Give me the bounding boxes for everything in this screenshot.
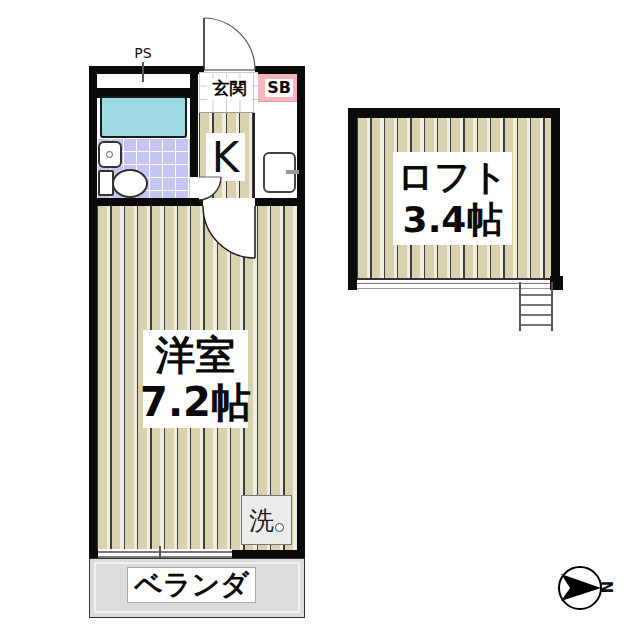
wall-top-right-segment [255, 66, 305, 74]
entrance-text: 玄関 [213, 79, 247, 99]
ladder-rung [521, 324, 551, 326]
compass-north-label: N [598, 579, 614, 595]
bathtub [100, 96, 187, 138]
floor-plan: SB 玄関 K N PS 洋室 7 [0, 0, 640, 640]
wall-bathroom-right [190, 74, 198, 177]
shoe-box-text: SB [267, 79, 291, 98]
ladder-rung [521, 294, 551, 296]
bathroom-sink-drain [106, 151, 113, 158]
veranda-label: ベランダ [127, 567, 256, 603]
pipe-space-label: PS [128, 45, 158, 61]
compass [559, 567, 601, 609]
loft-wall-right [551, 108, 560, 278]
laundry-space: 洗 [241, 495, 292, 545]
western-room-name: 洋室 [156, 332, 236, 379]
veranda-text: ベランダ [134, 569, 249, 602]
kitchen-label: K [206, 133, 245, 181]
wall-mid-left-segment [89, 198, 203, 206]
ladder-rung [521, 304, 551, 306]
loft-wall-left [348, 108, 357, 290]
shoe-box: SB [258, 74, 297, 102]
wall-top-left-segment [89, 66, 204, 74]
loft-edge-line-2 [357, 283, 550, 284]
western-room-size: 7.2帖 [140, 379, 251, 426]
shoe-box-label: SB [265, 79, 293, 97]
loft-size: 3.4帖 [403, 199, 503, 241]
kitchen-counter-edge [253, 113, 255, 198]
wall-bottom-left-stub [89, 550, 98, 558]
wall-right [297, 66, 305, 558]
compass-north-arrow [561, 574, 601, 601]
wall-mid-right-segment [255, 198, 305, 206]
loft-edge-line-1 [357, 278, 550, 280]
toilet-bowl [112, 169, 148, 198]
kitchen-faucet [286, 170, 299, 174]
laundry-text: 洗 [249, 504, 274, 537]
loft-edge-line-3 [357, 288, 550, 289]
entrance-label: 玄関 [207, 78, 252, 100]
ladder-rail-right [551, 282, 553, 331]
compass-circle [559, 567, 601, 609]
pipe-space-tick [142, 62, 144, 82]
loft-name: ロフト [397, 156, 508, 198]
kitchen-text: K [212, 133, 240, 182]
wall-bottom-right-segment [232, 550, 305, 558]
entrance-door [204, 18, 255, 70]
loft-label: ロフト 3.4帖 [393, 152, 512, 245]
laundry-circle [275, 523, 284, 532]
window-line-outer [98, 551, 232, 553]
western-room-label: 洋室 7.2帖 [143, 330, 248, 428]
ladder-rung [521, 314, 551, 316]
wall-left [89, 66, 97, 558]
loft-wall-top [348, 108, 560, 118]
